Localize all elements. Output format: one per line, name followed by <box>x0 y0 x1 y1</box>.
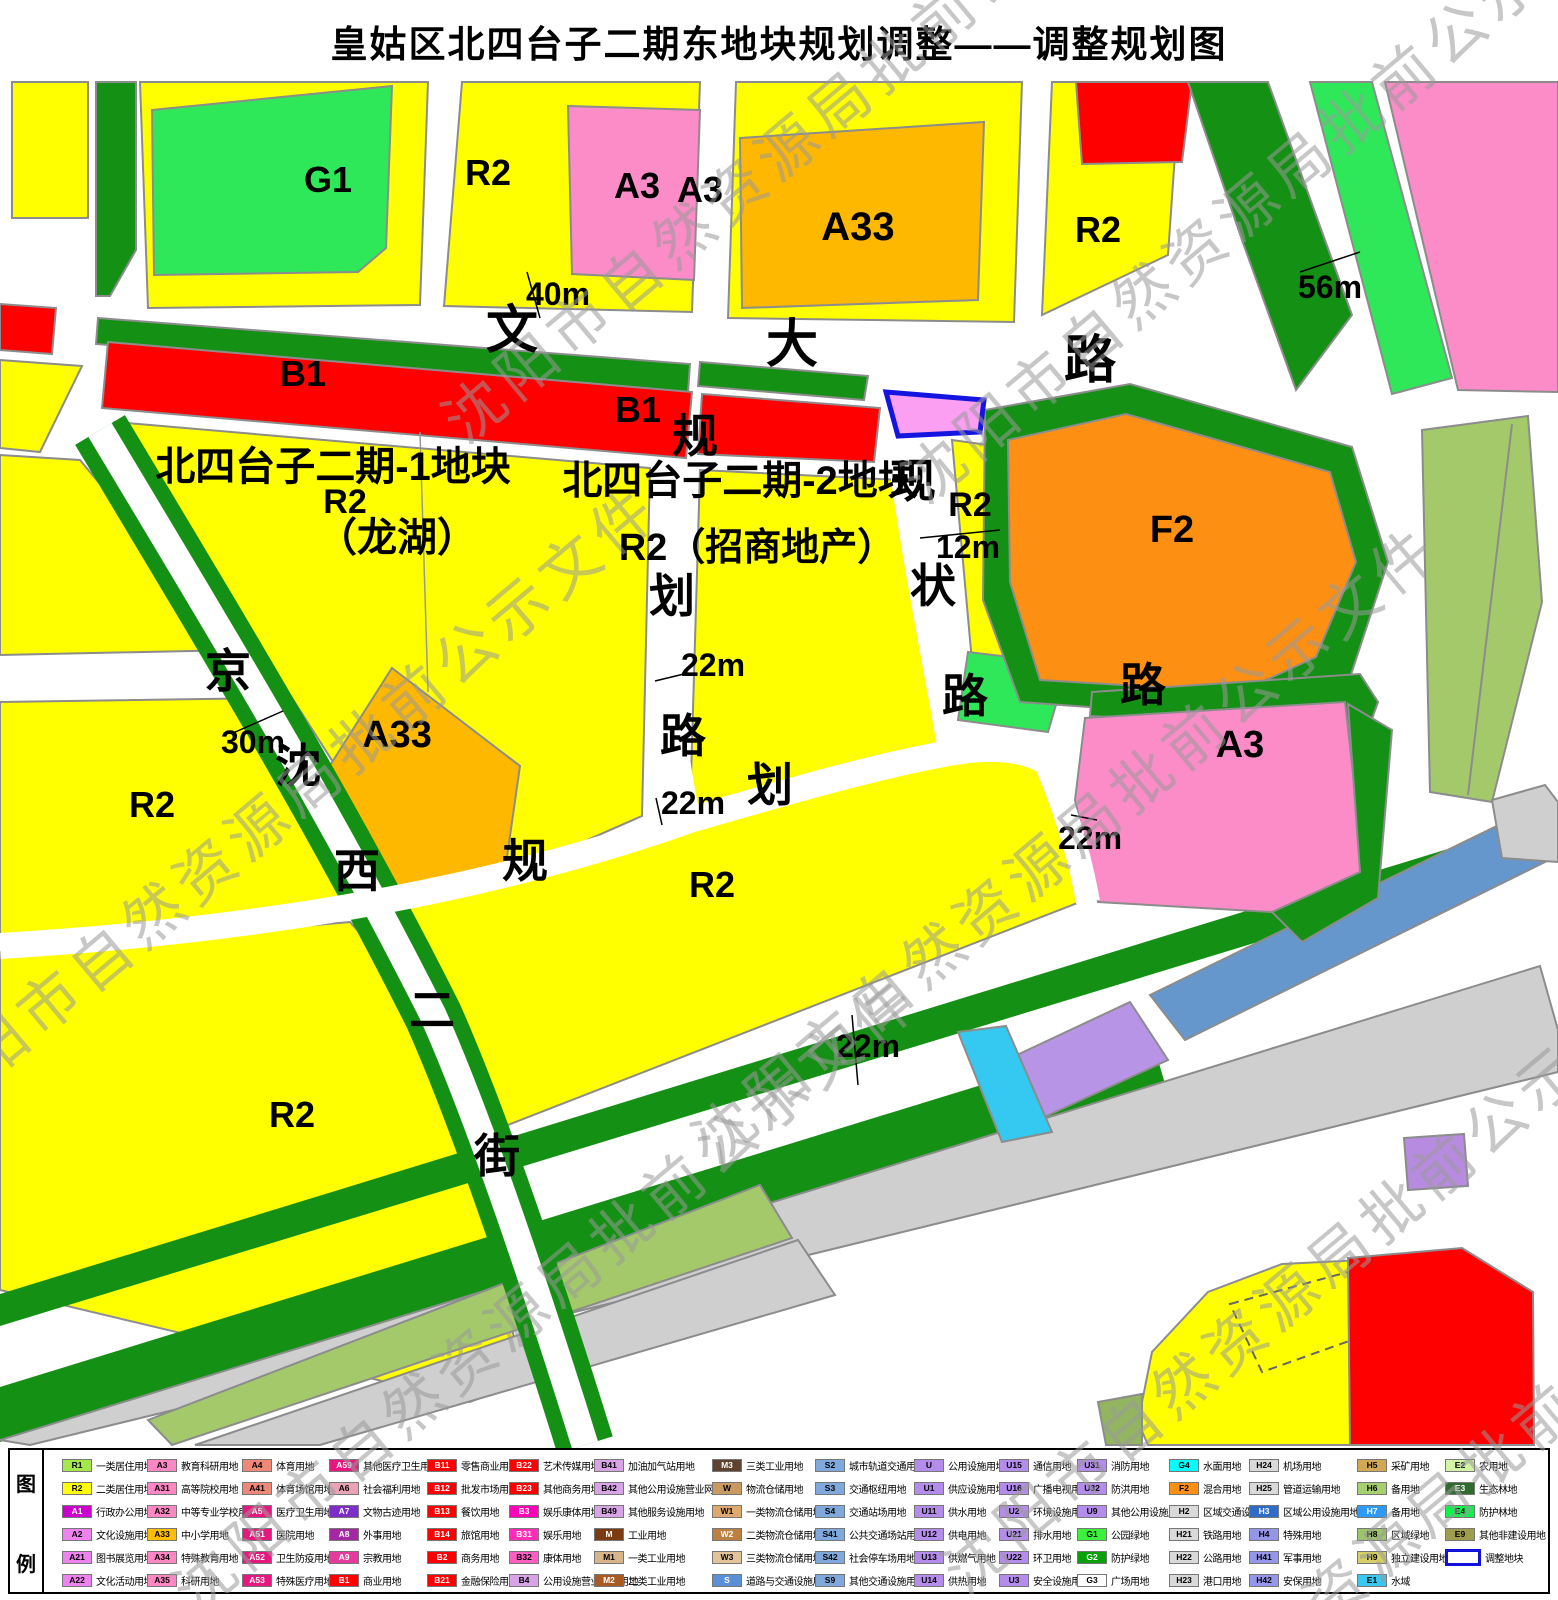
legend-entry: U32防洪用地 <box>1077 1481 1149 1496</box>
legend-entry: U15通信用地 <box>999 1458 1071 1473</box>
legend-label: 农用地 <box>1479 1458 1508 1473</box>
legend-entry: H21铁路用地 <box>1169 1527 1241 1542</box>
map-label: 22m <box>1058 820 1122 856</box>
legend-entry: B2商务用地 <box>427 1550 499 1565</box>
legend-entry: U31消防用地 <box>1077 1458 1149 1473</box>
zone-b1-east <box>698 394 880 462</box>
legend-entry: H25管道运输用地 <box>1249 1481 1340 1496</box>
map-label: 街 <box>473 1130 520 1182</box>
legend-chip: H4 <box>1249 1528 1279 1541</box>
legend-chip: U2 <box>999 1505 1029 1518</box>
legend-entry: U11供水用地 <box>914 1504 986 1519</box>
zone-gray-right <box>1492 785 1558 862</box>
legend-label: 二类物流仓储用地 <box>746 1527 822 1542</box>
map-label: 路 <box>1120 659 1167 711</box>
legend-label: 供热用地 <box>948 1573 986 1588</box>
legend-chip: B13 <box>427 1505 457 1518</box>
legend-chip: H9 <box>1357 1551 1387 1564</box>
legend-chip: H41 <box>1249 1551 1279 1564</box>
map-label: 22m <box>681 647 745 683</box>
legend-entry: B32康体用地 <box>509 1550 581 1565</box>
map-label: 京 <box>205 645 251 697</box>
legend-entry: B1商业用地 <box>329 1573 401 1588</box>
legend-label: 铁路用地 <box>1203 1527 1241 1542</box>
legend-chip: B3 <box>509 1505 539 1518</box>
legend-label: 区域绿地 <box>1391 1527 1429 1542</box>
legend-entry: U公用设施用地 <box>914 1458 1005 1473</box>
map-label: 北四台子二期-2地块 <box>562 459 918 503</box>
legend-label: 供水用地 <box>948 1504 986 1519</box>
legend-chip: A2 <box>62 1528 92 1541</box>
legend-chip: H22 <box>1169 1551 1199 1564</box>
legend-label: 餐饮用地 <box>461 1504 499 1519</box>
map-label: 12m <box>936 529 1000 565</box>
map-label: 30m <box>221 724 285 760</box>
legend-entry: H7备用地 <box>1357 1504 1420 1519</box>
map-label: F2 <box>1150 509 1194 551</box>
legend-label: 防护绿地 <box>1111 1550 1149 1565</box>
legend-chip: S4 <box>815 1505 845 1518</box>
legend-side-title: 图 例 <box>10 1450 44 1592</box>
legend-entry: M1一类工业用地 <box>594 1550 685 1565</box>
legend-label: 环卫用地 <box>1033 1550 1071 1565</box>
legend-label: 公路用地 <box>1203 1550 1241 1565</box>
legend-label: 工业用地 <box>628 1527 666 1542</box>
map-label: 划 <box>649 570 695 622</box>
legend-label: 医疗卫生用地 <box>276 1504 333 1519</box>
map-label: 56m <box>1298 269 1362 305</box>
legend-entry: G4水面用地 <box>1169 1458 1241 1473</box>
legend-entry: M2二类工业用地 <box>594 1573 685 1588</box>
legend-chip: A6 <box>329 1482 359 1495</box>
legend-chip: E4 <box>1445 1505 1475 1518</box>
legend-chip: A9 <box>329 1551 359 1564</box>
legend-entry: W3三类物流仓储用地 <box>712 1550 822 1565</box>
legend-entry: A2文化设施用地 <box>62 1527 153 1542</box>
legend-chip: H21 <box>1169 1528 1199 1541</box>
zone-red-bottomright <box>1348 1248 1534 1445</box>
legend-entry: S3交通枢纽用地 <box>815 1481 906 1496</box>
legend-chip: B32 <box>509 1551 539 1564</box>
legend-label: 商务用地 <box>461 1550 499 1565</box>
legend-label: 旅馆用地 <box>461 1527 499 1542</box>
legend-entry: S道路与交通设施用地 <box>712 1573 832 1588</box>
legend-chip: A7 <box>329 1505 359 1518</box>
legend-chip: A41 <box>242 1482 272 1495</box>
legend-label: 一类工业用地 <box>628 1550 685 1565</box>
legend-chip: U14 <box>914 1574 944 1587</box>
legend-entry: H22公路用地 <box>1169 1550 1241 1565</box>
legend-label: 机场用地 <box>1283 1458 1321 1473</box>
legend-chip: A34 <box>147 1551 177 1564</box>
zone-green-strip-topleft <box>96 82 136 296</box>
legend-chip: A32 <box>147 1505 177 1518</box>
legend-chip: B41 <box>594 1459 624 1472</box>
legend-entry: A31高等院校用地 <box>147 1481 238 1496</box>
legend-entry: B12批发市场用地 <box>427 1481 518 1496</box>
legend-chip: H42 <box>1249 1574 1279 1587</box>
map-label: （龙湖） <box>317 516 477 560</box>
legend-chip: M <box>594 1528 624 1541</box>
map-label: 西 <box>334 845 380 897</box>
legend-entry: W1一类物流仓储用地 <box>712 1504 822 1519</box>
legend-entry-adjusted-plot: 调整地块 <box>1445 1550 1523 1565</box>
legend-entry: S42社会停车场用地 <box>815 1550 916 1565</box>
legend-chip: W1 <box>712 1505 742 1518</box>
road-guihua-vertical <box>665 466 688 816</box>
legend-entry: U22环卫用地 <box>999 1550 1071 1565</box>
legend-label: 特殊教育用地 <box>181 1550 238 1565</box>
legend-label: 军事用地 <box>1283 1550 1321 1565</box>
legend-entry: A22文化活动用地 <box>62 1573 153 1588</box>
zone-r2-topleft <box>12 82 88 218</box>
map-label: 22m <box>836 1028 900 1064</box>
zone-g1-park <box>152 86 392 275</box>
legend-chip: U11 <box>914 1505 944 1518</box>
legend-chip: A5 <box>242 1505 272 1518</box>
legend-chip: H5 <box>1357 1459 1387 1472</box>
map-label: 22m <box>661 785 725 821</box>
legend-label: 公园绿地 <box>1111 1527 1149 1542</box>
legend-entry: A41体育场馆用地 <box>242 1481 333 1496</box>
map-label: 状 <box>910 560 957 612</box>
map-label: A3 <box>1216 724 1265 766</box>
legend-entry: A34特殊教育用地 <box>147 1550 238 1565</box>
legend-label: 商业用地 <box>363 1573 401 1588</box>
legend-entry: H42安保用地 <box>1249 1573 1321 1588</box>
zone-purple-square <box>1404 1134 1468 1190</box>
legend-char-tu: 图 <box>16 1468 36 1497</box>
map-label: G1 <box>304 159 352 200</box>
legend-label: 宗教用地 <box>363 1550 401 1565</box>
legend-entry: M3三类工业用地 <box>712 1458 803 1473</box>
legend-label: 三类物流仓储用地 <box>746 1550 822 1565</box>
legend-label: 医院用地 <box>276 1527 314 1542</box>
legend-label: 备用地 <box>1391 1481 1420 1496</box>
legend-chip: S2 <box>815 1459 845 1472</box>
legend-entry: E2农用地 <box>1445 1458 1508 1473</box>
legend-label: 二类工业用地 <box>628 1573 685 1588</box>
legend-entry: R1一类居住用地 <box>62 1458 153 1473</box>
legend-label: 特殊医疗用地 <box>276 1573 333 1588</box>
legend-chip: G2 <box>1077 1551 1107 1564</box>
legend-chip: U32 <box>1077 1482 1107 1495</box>
legend-entry: A21图书展览用地 <box>62 1550 153 1565</box>
legend-chip: S41 <box>815 1528 845 1541</box>
map-label: R2 <box>129 784 175 825</box>
legend-entry: E4防护林地 <box>1445 1504 1517 1519</box>
legend-label: 通信用地 <box>1033 1458 1071 1473</box>
map-label: 规 <box>672 410 718 462</box>
legend-entry: A9宗教用地 <box>329 1550 401 1565</box>
legend-label: 公用设施用地 <box>948 1458 1005 1473</box>
legend-chip: A1 <box>62 1505 92 1518</box>
legend-label: 备用地 <box>1391 1504 1420 1519</box>
legend-label: 卫生防疫用地 <box>276 1550 333 1565</box>
legend-entry: A7文物古迹用地 <box>329 1504 420 1519</box>
legend-entry: A51医院用地 <box>242 1527 314 1542</box>
legend-chip: A22 <box>62 1574 92 1587</box>
map-label: R2（招商地产） <box>619 527 896 569</box>
legend-entry: H6备用地 <box>1357 1481 1420 1496</box>
legend-entry: A5医疗卫生用地 <box>242 1504 333 1519</box>
planning-map: G1R2A3A3A33R256m40m文大路B1B1北四台子二期-1地块R2（龙… <box>0 0 1558 1600</box>
legend-chip: F2 <box>1169 1482 1199 1495</box>
legend-label: 社会福利用地 <box>363 1481 420 1496</box>
legend-entry: A4体育用地 <box>242 1458 314 1473</box>
legend-chip: B4 <box>509 1574 539 1587</box>
legend-chip: A53 <box>242 1574 272 1587</box>
legend-chip: A52 <box>242 1551 272 1564</box>
legend-chip: U15 <box>999 1459 1029 1472</box>
legend-label: 娱乐用地 <box>543 1527 581 1542</box>
legend-label: 供电用地 <box>948 1527 986 1542</box>
legend-chip: U3 <box>999 1574 1029 1587</box>
legend-chip: A4 <box>242 1459 272 1472</box>
legend-chip: B12 <box>427 1482 457 1495</box>
legend-chip: G3 <box>1077 1574 1107 1587</box>
map-label: B1 <box>615 389 661 430</box>
map-label: B1 <box>280 353 326 394</box>
legend-entry: B13餐饮用地 <box>427 1504 499 1519</box>
legend-label: 供燃气用地 <box>948 1550 996 1565</box>
legend-label: 二类居住用地 <box>96 1481 153 1496</box>
legend-chip: E1 <box>1357 1574 1387 1587</box>
legend-entry: H24机场用地 <box>1249 1458 1321 1473</box>
legend-label: 加油加气站用地 <box>628 1458 695 1473</box>
map-label: A33 <box>821 205 894 249</box>
legend-chip: U16 <box>999 1482 1029 1495</box>
legend-entry: W2二类物流仓储用地 <box>712 1527 822 1542</box>
legend-label: 消防用地 <box>1111 1458 1149 1473</box>
legend-label: 一类物流仓储用地 <box>746 1504 822 1519</box>
zone-lightgreen-right <box>1422 416 1542 802</box>
legend-chip: B11 <box>427 1459 457 1472</box>
legend-chip: A8 <box>329 1528 359 1541</box>
legend-entry: U21排水用地 <box>999 1527 1071 1542</box>
legend-entry: B41加油加气站用地 <box>594 1458 695 1473</box>
legend-entry: S2城市轨道交通用地 <box>815 1458 925 1473</box>
legend-label: 文化活动用地 <box>96 1573 153 1588</box>
legend-chip: E2 <box>1445 1459 1475 1472</box>
legend-chip: H25 <box>1249 1482 1279 1495</box>
legend-label: 行政办公用地 <box>96 1504 153 1519</box>
legend-entry: E3生态林地 <box>1445 1481 1517 1496</box>
legend-label: 其他服务设施用地 <box>628 1504 704 1519</box>
legend-chip: B21 <box>427 1574 457 1587</box>
legend-entry: A59其他医疗卫生用地 <box>329 1458 439 1473</box>
legend-label: 物流仓储用地 <box>746 1481 803 1496</box>
legend-entry: B14旅馆用地 <box>427 1527 499 1542</box>
legend-label: 采矿用地 <box>1391 1458 1429 1473</box>
legend-chip: R1 <box>62 1459 92 1472</box>
legend-entry: A35科研用地 <box>147 1573 219 1588</box>
legend-chip: B22 <box>509 1459 539 1472</box>
legend-chip: M2 <box>594 1574 624 1587</box>
legend-entry: M工业用地 <box>594 1527 666 1542</box>
map-label: 大 <box>766 316 818 374</box>
legend-entry: H41军事用地 <box>1249 1550 1321 1565</box>
legend-label: 艺术传媒用地 <box>543 1458 600 1473</box>
legend-entry: E9其他非建设用地 <box>1445 1527 1546 1542</box>
legend-chip: S <box>712 1574 742 1587</box>
legend-label: 三类工业用地 <box>746 1458 803 1473</box>
legend-chip: S42 <box>815 1551 845 1564</box>
legend-entry: B23其他商务用地 <box>509 1481 600 1496</box>
legend-entry: S4交通站场用地 <box>815 1504 906 1519</box>
map-label: R2 <box>269 1094 315 1135</box>
legend-entry: A6社会福利用地 <box>329 1481 420 1496</box>
legend-label: 广场用地 <box>1111 1573 1149 1588</box>
legend-entry: A32中等专业学校用地 <box>147 1504 257 1519</box>
legend-chip-adjusted-plot <box>1445 1549 1481 1566</box>
legend-chip: U12 <box>914 1528 944 1541</box>
legend-label: 科研用地 <box>181 1573 219 1588</box>
zone-olive-wedge <box>1098 1394 1142 1445</box>
legend-label: 图书展览用地 <box>96 1550 153 1565</box>
legend-chip: H3 <box>1249 1505 1279 1518</box>
legend-label: 中小学用地 <box>181 1527 229 1542</box>
legend-label: 水域 <box>1391 1573 1410 1588</box>
legend-label: 娱乐康体用地 <box>543 1504 600 1519</box>
legend-chip: H2 <box>1169 1505 1199 1518</box>
legend-chip: B23 <box>509 1482 539 1495</box>
legend-chip: A35 <box>147 1574 177 1587</box>
legend-chip: U31 <box>1077 1459 1107 1472</box>
map-label: R2 <box>465 152 511 193</box>
legend-entry: B31娱乐用地 <box>509 1527 581 1542</box>
legend-chip: U13 <box>914 1551 944 1564</box>
legend-entry: H23港口用地 <box>1169 1573 1241 1588</box>
map-label: A3 <box>677 169 723 210</box>
legend-chip: G1 <box>1077 1528 1107 1541</box>
legend-chip: R2 <box>62 1482 92 1495</box>
legend-label: 水面用地 <box>1203 1458 1241 1473</box>
legend-label: 混合用地 <box>1203 1481 1241 1496</box>
legend-chip: B49 <box>594 1505 624 1518</box>
legend-chip: A21 <box>62 1551 92 1564</box>
legend-label: 康体用地 <box>543 1550 581 1565</box>
legend-entry: S41公共交通场站用地 <box>815 1527 925 1542</box>
legend-label: 安保用地 <box>1283 1573 1321 1588</box>
legend-label: 调整地块 <box>1485 1550 1523 1565</box>
legend-entry: B21金融保险用地 <box>427 1573 518 1588</box>
legend-entry: H8区域绿地 <box>1357 1527 1429 1542</box>
map-label: 划 <box>747 759 793 811</box>
legend-entry: A8外事用地 <box>329 1527 401 1542</box>
legend-label: 其他商务用地 <box>543 1481 600 1496</box>
map-label: A3 <box>614 165 660 206</box>
legend-entry: H9独立建设用地 <box>1357 1550 1448 1565</box>
map-label: 二 <box>409 984 455 1036</box>
legend-entry: A33中小学用地 <box>147 1527 229 1542</box>
legend-entry: A53特殊医疗用地 <box>242 1573 333 1588</box>
legend-chip: E9 <box>1445 1528 1475 1541</box>
map-label: R2 <box>1075 209 1121 250</box>
legend-entry: H4特殊用地 <box>1249 1527 1321 1542</box>
legend: 图 例 R1一类居住用地R2二类居住用地A1行政办公用地A2文化设施用地A21图… <box>8 1448 1550 1594</box>
legend-entry: S9其他交通设施用地 <box>815 1573 925 1588</box>
legend-char-li: 例 <box>16 1548 36 1577</box>
legend-chip: H7 <box>1357 1505 1387 1518</box>
legend-label: 生态林地 <box>1479 1481 1517 1496</box>
legend-label: 交通站场用地 <box>849 1504 906 1519</box>
legend-chip: M1 <box>594 1551 624 1564</box>
legend-chip: U9 <box>1077 1505 1107 1518</box>
map-label: 路 <box>660 710 707 762</box>
legend-label: 管道运输用地 <box>1283 1481 1340 1496</box>
legend-label: 排水用地 <box>1033 1527 1071 1542</box>
legend-chip: E3 <box>1445 1482 1475 1495</box>
adjusted-plot-outline <box>886 392 984 436</box>
legend-entry: F2混合用地 <box>1169 1481 1241 1496</box>
legend-entry: G1公园绿地 <box>1077 1527 1149 1542</box>
legend-chip: A51 <box>242 1528 272 1541</box>
legend-label: 供应设施用地 <box>948 1481 1005 1496</box>
legend-chip: W <box>712 1482 742 1495</box>
legend-label: 港口用地 <box>1203 1573 1241 1588</box>
legend-entry: A3教育科研用地 <box>147 1458 238 1473</box>
legend-entry: E1水域 <box>1357 1573 1410 1588</box>
legend-chip: A59 <box>329 1459 359 1472</box>
legend-label: 文物古迹用地 <box>363 1504 420 1519</box>
legend-chip: S3 <box>815 1482 845 1495</box>
legend-label: 体育用地 <box>276 1458 314 1473</box>
legend-entry: U14供热用地 <box>914 1573 986 1588</box>
legend-entry: G3广场用地 <box>1077 1573 1149 1588</box>
legend-entry: A1行政办公用地 <box>62 1504 153 1519</box>
legend-label: 防洪用地 <box>1111 1481 1149 1496</box>
page-title: 皇姑区北四台子二期东地块规划调整——调整规划图 <box>0 14 1558 68</box>
legend-label: 教育科研用地 <box>181 1458 238 1473</box>
legend-entry: G2防护绿地 <box>1077 1550 1149 1565</box>
zone-yellow-west-small <box>0 360 82 452</box>
legend-entry: B22艺术传媒用地 <box>509 1458 600 1473</box>
legend-chip: H6 <box>1357 1482 1387 1495</box>
legend-entry: B3娱乐康体用地 <box>509 1504 600 1519</box>
legend-chip: A3 <box>147 1459 177 1472</box>
map-label: 现 <box>890 455 936 507</box>
legend-label: 独立建设用地 <box>1391 1550 1448 1565</box>
legend-chip: B14 <box>427 1528 457 1541</box>
map-label: 文 <box>486 302 538 360</box>
legend-chip: U <box>914 1459 944 1472</box>
legend-entry: R2二类居住用地 <box>62 1481 153 1496</box>
legend-label: 文化设施用地 <box>96 1527 153 1542</box>
legend-chip: W3 <box>712 1551 742 1564</box>
legend-entry: A52卫生防疫用地 <box>242 1550 333 1565</box>
legend-chip: B1 <box>329 1574 359 1587</box>
map-label: R2 <box>689 864 735 905</box>
legend-entry: W物流仓储用地 <box>712 1481 803 1496</box>
legend-chip: B31 <box>509 1528 539 1541</box>
legend-entry: B49其他服务设施用地 <box>594 1504 704 1519</box>
map-label: 规 <box>502 835 548 887</box>
legend-entry: H3区域公用设施用地 <box>1249 1504 1359 1519</box>
legend-entry: U13供燃气用地 <box>914 1550 996 1565</box>
legend-label: 交通枢纽用地 <box>849 1481 906 1496</box>
legend-chip: W2 <box>712 1528 742 1541</box>
legend-chip: A31 <box>147 1482 177 1495</box>
zone-b1-fragment-west <box>0 304 56 354</box>
legend-chip: U22 <box>999 1551 1029 1564</box>
legend-chip: G4 <box>1169 1459 1199 1472</box>
map-label: R2 <box>948 486 991 524</box>
map-label: 路 <box>942 670 989 722</box>
legend-chip: B42 <box>594 1482 624 1495</box>
legend-label: 其他非建设用地 <box>1479 1527 1546 1542</box>
legend-label: 外事用地 <box>363 1527 401 1542</box>
